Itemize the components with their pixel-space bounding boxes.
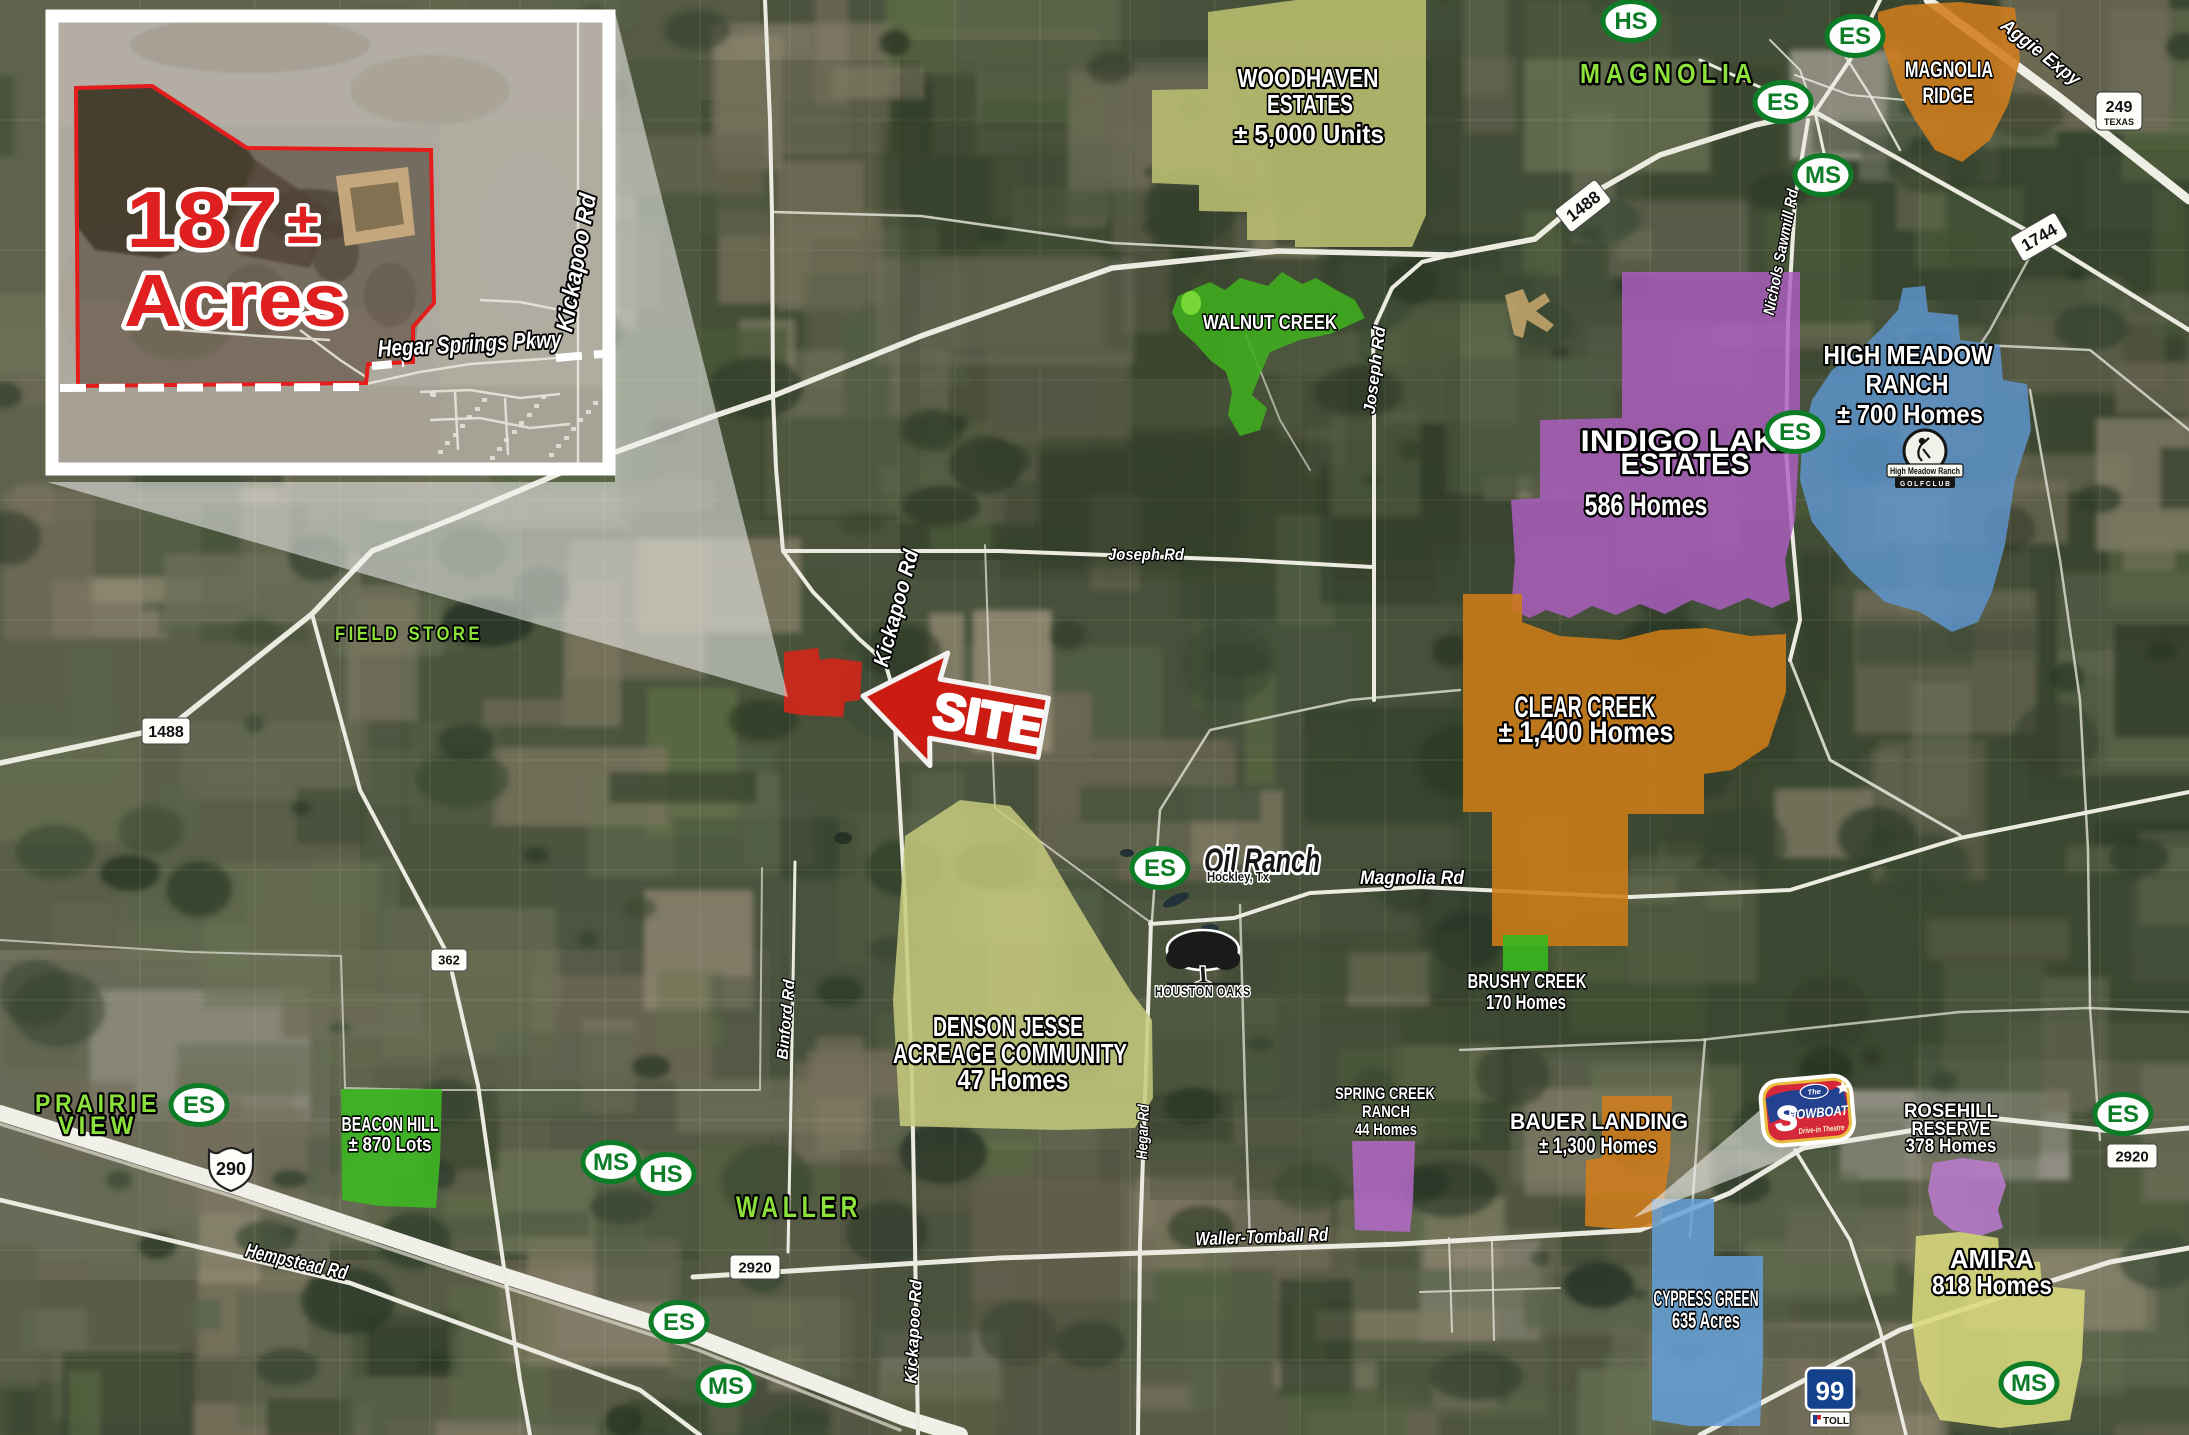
svg-text:HS: HS	[649, 1161, 682, 1188]
svg-text:ES: ES	[1144, 855, 1176, 882]
svg-text:MS: MS	[1805, 162, 1841, 189]
svg-text:MS: MS	[708, 1373, 744, 1400]
svg-text:378 Homes: 378 Homes	[1906, 1136, 1997, 1157]
svg-text:249: 249	[2106, 99, 2133, 116]
svg-text:ES: ES	[183, 1092, 215, 1119]
svg-text:Hegar Rd: Hegar Rd	[1134, 1103, 1153, 1160]
svg-text:BRUSHY CREEK: BRUSHY CREEK	[1468, 971, 1587, 993]
svg-text:WALNUT CREEK: WALNUT CREEK	[1203, 312, 1337, 334]
svg-text:± 1,300 Homes: ± 1,300 Homes	[1539, 1133, 1657, 1158]
svg-text:Joseph Rd: Joseph Rd	[1108, 545, 1185, 564]
svg-text:2920: 2920	[738, 1259, 771, 1276]
svg-text:170 Homes: 170 Homes	[1486, 992, 1566, 1014]
svg-text:635 Acres: 635 Acres	[1672, 1308, 1740, 1333]
svg-text:RANCH: RANCH	[1362, 1102, 1410, 1121]
svg-text:ES: ES	[1839, 23, 1871, 50]
svg-text:± 870 Lots: ± 870 Lots	[349, 1134, 432, 1156]
svg-text:MAGNOLIA: MAGNOLIA	[1905, 57, 1993, 82]
svg-text:1488: 1488	[148, 724, 184, 741]
svg-text:ES: ES	[1767, 89, 1799, 116]
svg-text:ES: ES	[663, 1309, 695, 1336]
svg-text:HIGH MEADOW: HIGH MEADOW	[1824, 340, 1993, 370]
svg-text:HS: HS	[1614, 8, 1647, 35]
svg-text:ES: ES	[2107, 1101, 2139, 1128]
svg-text:290: 290	[216, 1159, 246, 1179]
svg-text:VIEW: VIEW	[58, 1112, 138, 1140]
svg-text:TOLL: TOLL	[1823, 1416, 1849, 1427]
svg-text:BAUER LANDING: BAUER LANDING	[1510, 1109, 1688, 1134]
svg-text:± 1,400 Homes: ± 1,400 Homes	[1499, 716, 1674, 749]
svg-text:MS: MS	[593, 1149, 629, 1176]
svg-text:MS: MS	[2011, 1370, 2047, 1397]
svg-text:586 Homes: 586 Homes	[1585, 489, 1708, 522]
svg-text:S: S	[1773, 1099, 1799, 1139]
svg-text:2920: 2920	[2115, 1148, 2148, 1165]
svg-text:BEACON HILL: BEACON HILL	[342, 1114, 439, 1136]
svg-text:362: 362	[438, 953, 460, 968]
svg-text:TEXAS: TEXAS	[2104, 117, 2134, 127]
svg-text:± 5,000 Units: ± 5,000 Units	[1234, 119, 1384, 149]
svg-text:47 Homes: 47 Homes	[958, 1064, 1069, 1095]
svg-text:Magnolia Rd: Magnolia Rd	[1360, 868, 1464, 889]
svg-text:The: The	[1807, 1087, 1821, 1097]
svg-text:ES: ES	[1779, 419, 1811, 446]
svg-text:± 700 Homes: ± 700 Homes	[1837, 399, 1983, 429]
svg-text:99: 99	[1816, 1376, 1845, 1406]
svg-text:HOUSTON OAKS: HOUSTON OAKS	[1155, 984, 1251, 999]
svg-text:818 Homes: 818 Homes	[1932, 1270, 2052, 1300]
svg-text:Acres: Acres	[124, 259, 347, 342]
svg-text:FIELD STORE: FIELD STORE	[335, 624, 483, 645]
svg-text:RANCH: RANCH	[1866, 369, 1949, 399]
svg-text:G O L F C L U B: G O L F C L U B	[1900, 481, 1950, 488]
svg-text:RIDGE: RIDGE	[1923, 83, 1974, 108]
svg-text:SPRING CREEK: SPRING CREEK	[1335, 1084, 1436, 1103]
svg-text:WALLER: WALLER	[736, 1191, 862, 1224]
svg-text:ESTATES: ESTATES	[1267, 89, 1353, 119]
svg-text:High Meadow Ranch: High Meadow Ranch	[1890, 466, 1960, 477]
svg-text:187: 187	[126, 175, 278, 264]
svg-text:±: ±	[287, 191, 319, 256]
svg-text:44 Homes: 44 Homes	[1355, 1120, 1417, 1139]
svg-text:ESTATES: ESTATES	[1621, 448, 1750, 481]
svg-text:Hockley, Tx: Hockley, Tx	[1207, 869, 1270, 884]
svg-text:MAGNOLIA: MAGNOLIA	[1580, 58, 1758, 89]
